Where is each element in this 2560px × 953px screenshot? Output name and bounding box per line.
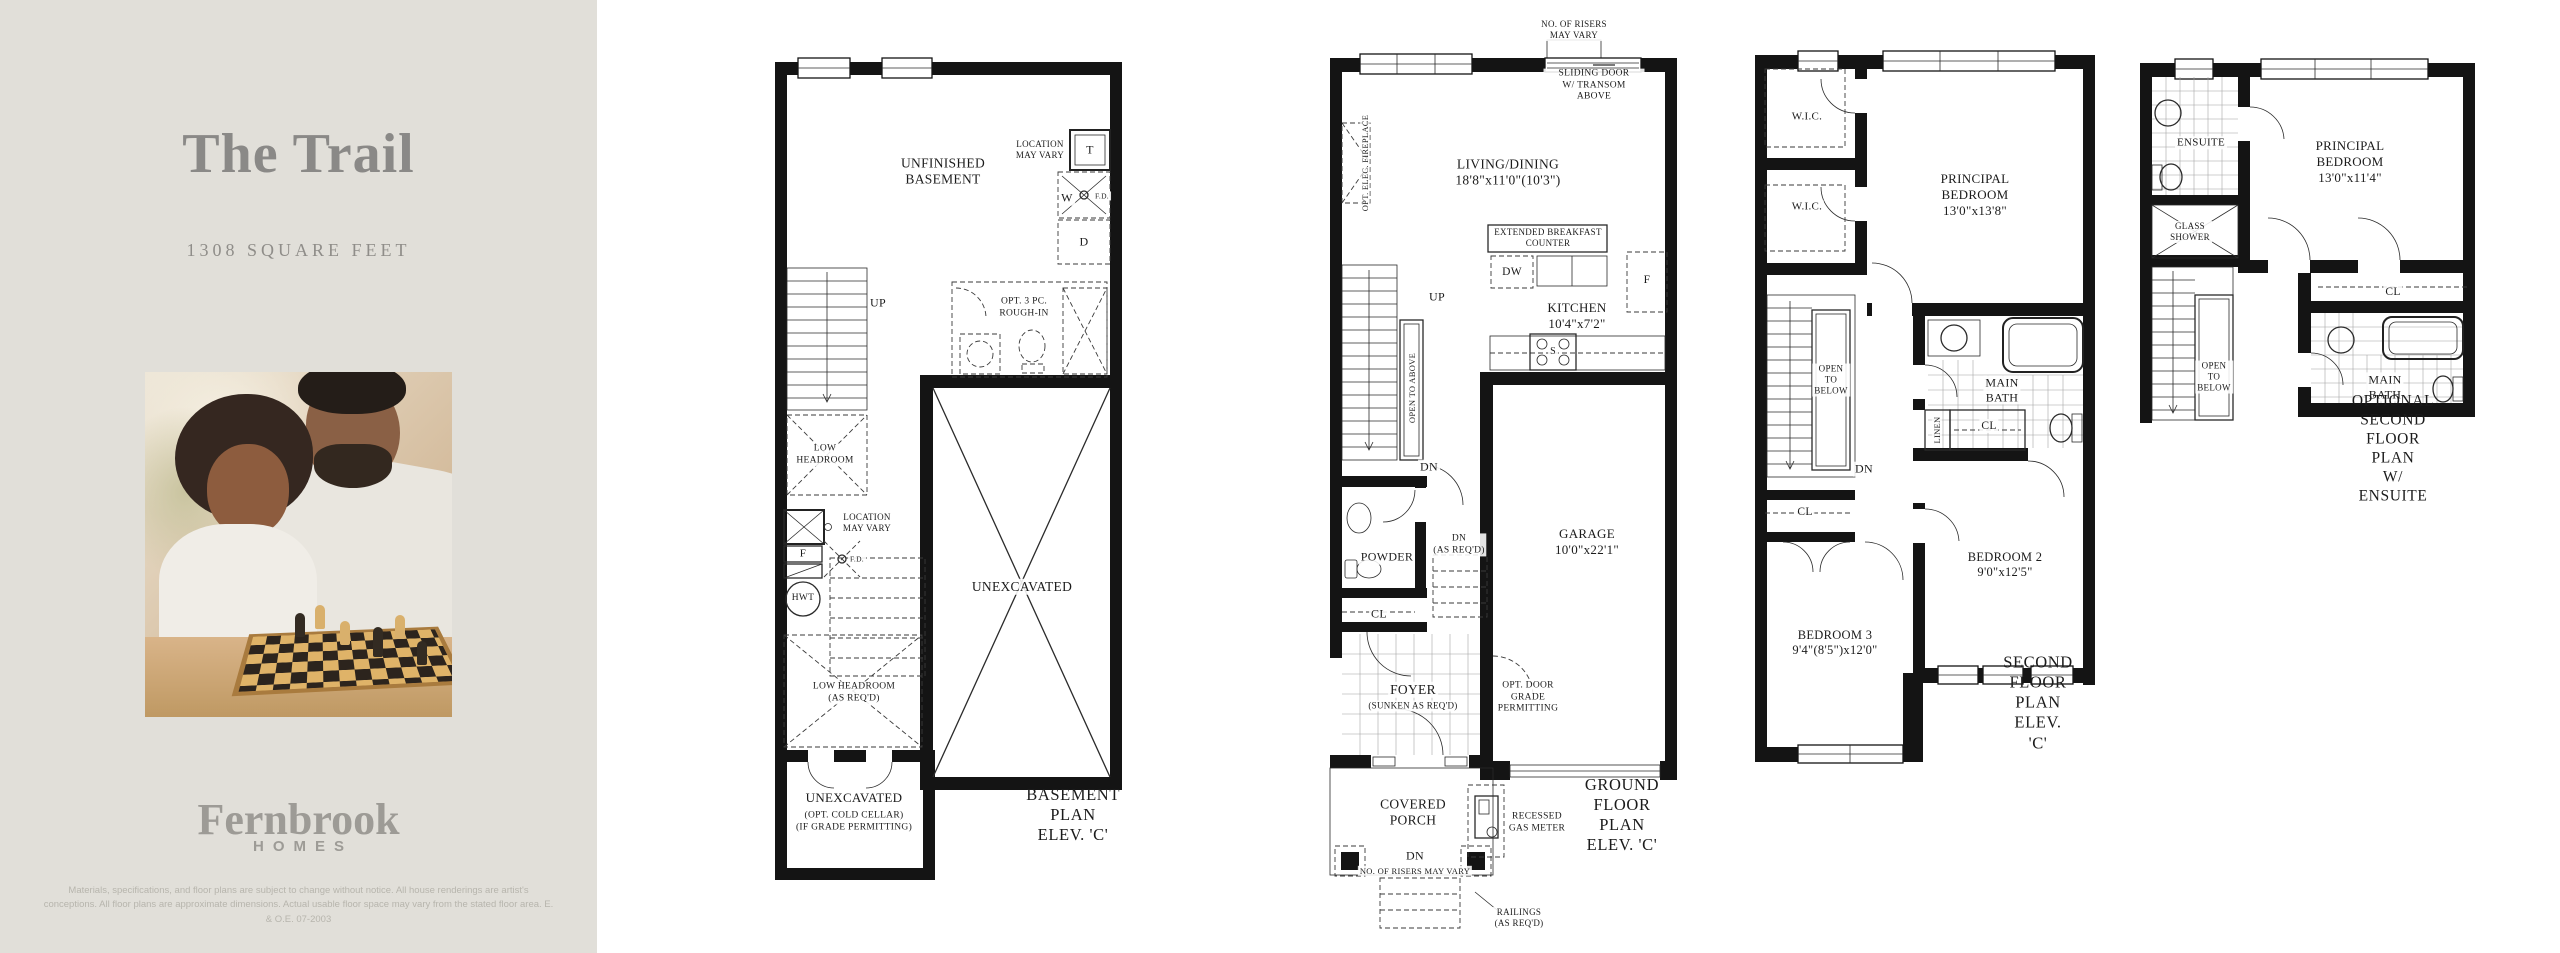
photo-father-beard	[314, 444, 392, 488]
plan-label: W.I.C.	[1790, 110, 1824, 123]
lifestyle-photo	[145, 372, 452, 717]
plan-label: RAILINGS (AS REQ'D)	[1493, 907, 1546, 929]
logo-wordmark: Fernbrook	[197, 798, 399, 842]
plan-label: EXTENDED BREAKFAST COUNTER	[1492, 227, 1603, 249]
chess-piece-icon	[417, 641, 427, 665]
chess-piece-icon	[395, 615, 405, 639]
optional-second-floor-plan: ENSUITEGLASS SHOWERPRINCIPAL BEDROOM 13'…	[2135, 55, 2480, 475]
plan-label: LOCATION MAY VARY	[1014, 139, 1066, 161]
plan-label: DW	[1500, 265, 1524, 279]
plan-label: F.D.	[848, 554, 866, 563]
plan-label: HWT	[790, 593, 817, 605]
plan-label: FOYER	[1388, 682, 1438, 698]
page-title: The Trail	[0, 122, 597, 186]
second-floor-plan: W.I.C.W.I.C.PRINCIPAL BEDROOM 13'0"x13'8…	[1750, 45, 2100, 770]
photo-father-hair	[298, 372, 406, 414]
plan-label: BEDROOM 2 9'0"x12'5"	[1966, 550, 2045, 581]
chess-piece-icon	[295, 613, 305, 637]
plan-label: (SUNKEN AS REQ'D)	[1366, 701, 1459, 712]
chess-piece-icon	[315, 605, 325, 629]
plan-label: OPEN TO BELOW	[2195, 361, 2233, 394]
plan-label: F	[1642, 273, 1653, 287]
plan-label: LOW HEADROOM (AS REQ'D)	[811, 681, 897, 704]
plan-label: LINEN	[1932, 415, 1942, 446]
plan-label: CL	[1979, 419, 1998, 433]
plan-label: OPT. ELEC. FIREPLACE	[1360, 113, 1370, 214]
plan-label: DN (AS REQ'D)	[1431, 533, 1486, 556]
photo-child-face	[207, 444, 289, 536]
plan-label: COVERED PORCH	[1378, 797, 1448, 830]
plan-label: POWDER	[1359, 550, 1415, 565]
plan-label: CL	[2383, 285, 2402, 299]
plan-label: W	[1059, 191, 1075, 206]
plan-label: CL	[1795, 505, 1814, 519]
optional-plan-caption: OPTIONAL SECOND FLOOR PLAN W/ ENSUITE	[2350, 392, 2437, 505]
plan-label: LIVING/DINING 18'8"x11'0"(10'3")	[1453, 157, 1562, 190]
square-feet-label: 1308 SQUARE FEET	[0, 240, 597, 261]
plan-label: LOCATION MAY VARY	[841, 512, 893, 534]
second-floor-plan-caption: SECOND FLOOR PLAN ELEV. 'C'	[2001, 653, 2075, 754]
plan-label: S	[1548, 346, 1558, 358]
plan-label: NO. OF RISERS MAY VARY	[1358, 866, 1472, 876]
plan-label: OPT. DOOR GRADE PERMITTING	[1496, 681, 1561, 716]
plan-label: PRINCIPAL BEDROOM 13'0"x13'8"	[1913, 171, 2038, 219]
plan-label: SLIDING DOOR W/ TRANSOM ABOVE	[1544, 69, 1645, 104]
plan-label: F.D.	[1093, 191, 1111, 200]
plan-label: UNEXCAVATED	[804, 790, 905, 806]
plan-label: GARAGE 10'0"x22'1"	[1553, 526, 1621, 558]
plan-label: RECESSED GAS METER	[1507, 811, 1567, 834]
fernbrook-logo: Fernbrook HOMES	[0, 798, 597, 855]
plan-label: NO. OF RISERS MAY VARY	[1539, 19, 1609, 41]
plan-label: GLASS SHOWER	[2168, 221, 2212, 243]
plan-label: CL	[1369, 607, 1389, 622]
legal-disclaimer: Materials, specifications, and floor pla…	[42, 884, 555, 927]
sidebar: The Trail 1308 SQUARE FEET Fernbrook HOM…	[0, 0, 597, 953]
basement-plan: UNFINISHED BASEMENTLOCATION MAY VARYTWF.…	[770, 50, 1140, 890]
plan-label: D	[1078, 235, 1091, 250]
plan-label: OPEN TO ABOVE	[1407, 351, 1417, 425]
plan-label: (OPT. COLD CELLAR) (IF GRADE PERMITTING)	[794, 810, 914, 833]
logo-homes-label: HOMES	[0, 838, 597, 855]
chess-piece-icon	[373, 627, 383, 657]
plan-label: MAIN BATH	[1983, 375, 2020, 404]
plan-label: F	[798, 547, 808, 560]
plan-label: DN	[1853, 462, 1875, 477]
plan-label: ENSUITE	[2175, 136, 2227, 149]
basement-plan-caption: BASEMENT PLAN ELEV. 'C'	[1024, 785, 1121, 845]
plan-label: OPEN TO BELOW	[1812, 364, 1850, 397]
plan-label: W.I.C.	[1790, 200, 1824, 213]
plan-label: UNFINISHED BASEMENT	[899, 156, 987, 189]
plan-label: OPT. 3 PC. ROUGH-IN	[997, 296, 1050, 319]
plan-label: DN	[1418, 460, 1440, 475]
ground-floor-plan-caption: GROUND FLOOR PLAN ELEV. 'C'	[1583, 775, 1661, 856]
plan-label: UNEXCAVATED	[970, 579, 1074, 595]
plan-label: DN	[1404, 849, 1426, 864]
plan-label: T	[1084, 143, 1096, 158]
plan-label: UP	[868, 296, 888, 311]
ground-floor-plan: NO. OF RISERS MAY VARYSLIDING DOOR W/ TR…	[1325, 20, 1695, 935]
brochure-page: The Trail 1308 SQUARE FEET Fernbrook HOM…	[0, 0, 2560, 953]
plan-label: UP	[1427, 290, 1447, 305]
chess-piece-icon	[340, 621, 350, 645]
plan-label: PRINCIPAL BEDROOM 13'0"x11'4"	[2285, 138, 2415, 186]
plan-label: KITCHEN 10'4"x7'2"	[1545, 300, 1608, 332]
plan-label: BEDROOM 3 9'4"(8'5")x12'0"	[1790, 628, 1879, 659]
plan-label: LOW HEADROOM	[794, 443, 855, 466]
